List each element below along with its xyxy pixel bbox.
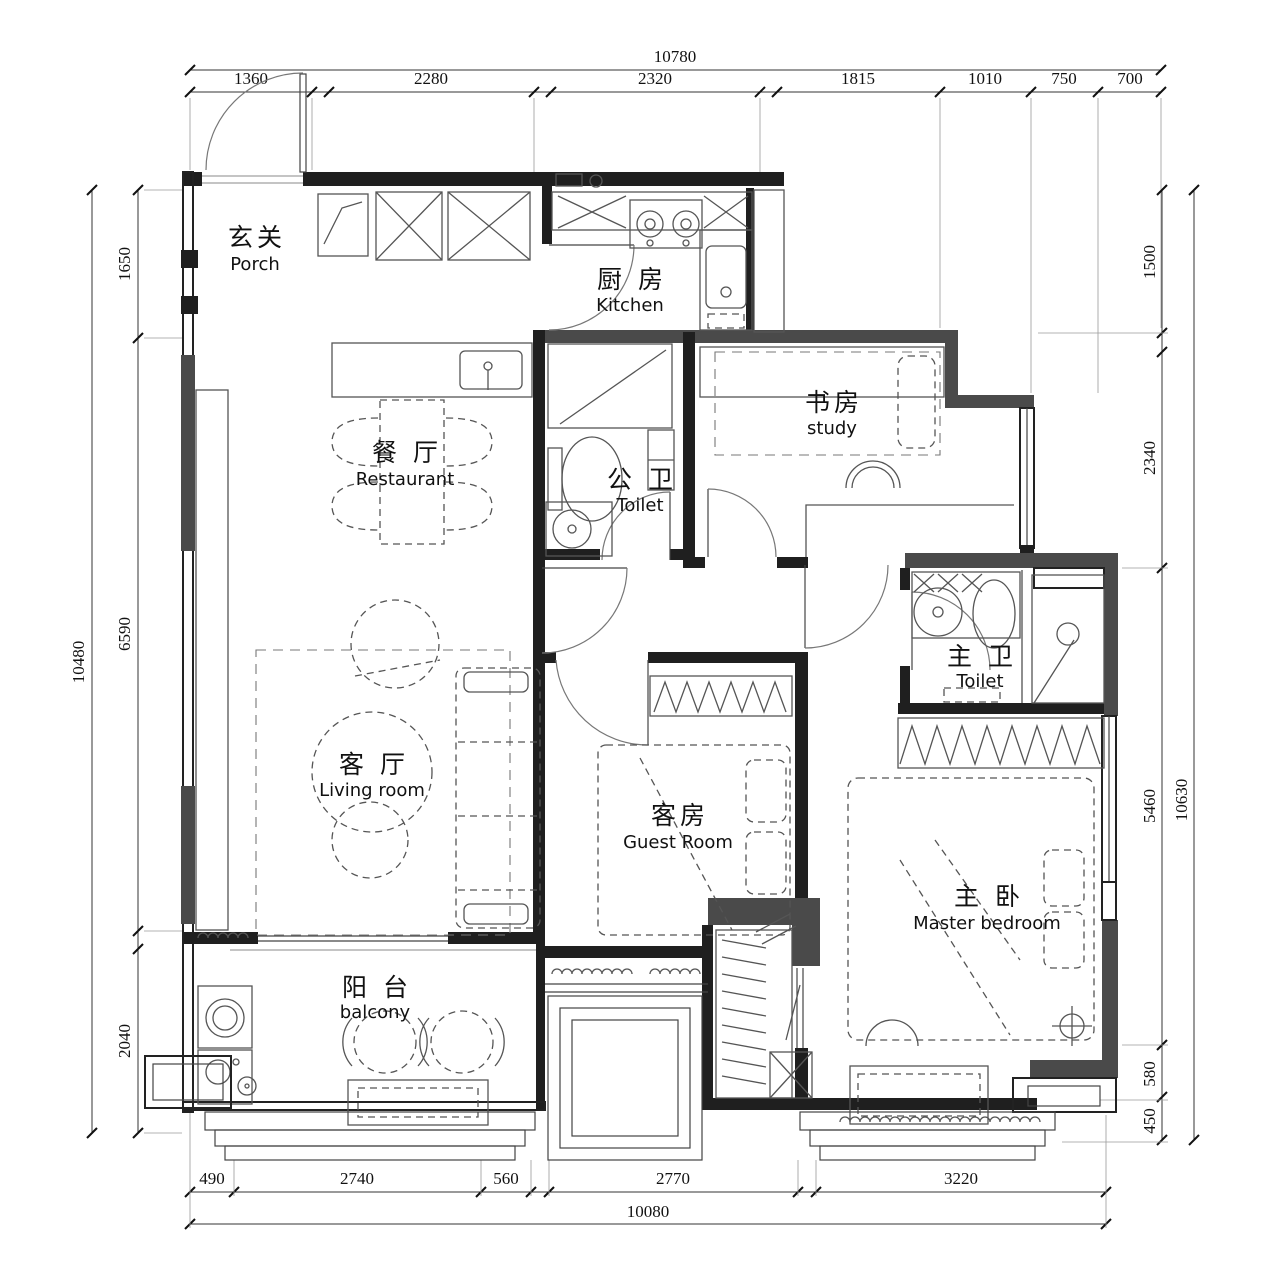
public-toilet-fixtures (546, 344, 674, 556)
shower-area (548, 344, 672, 428)
master-bench (850, 1066, 988, 1124)
bay-window-master-inner (1028, 1086, 1100, 1106)
label-living-cn: 客 厅 (339, 750, 409, 779)
wall-bath-south (898, 703, 1118, 714)
wall-bath-north (905, 553, 1118, 568)
shoe-cabinet (318, 194, 368, 256)
wall-study-south-2 (777, 557, 808, 568)
porch-fixtures (318, 192, 530, 260)
wall-band-south-kitchen (533, 330, 958, 343)
label-public-toilet-cn: 公 卫 (607, 465, 677, 494)
label-living-en: Living room (319, 780, 425, 801)
curtain-scallop-master (840, 1117, 1040, 1122)
label-kitchen-cn: 厨 房 (597, 265, 667, 294)
dim-right-seg-3: 580 (1140, 1061, 1159, 1087)
master-bay-1 (800, 1112, 1055, 1130)
label-balcony-en: balcony (340, 1002, 411, 1023)
wall-niche-top (181, 250, 198, 268)
master-chair (866, 1020, 918, 1046)
curtain-scallop-guest-2 (650, 969, 700, 974)
label-study-en: study (807, 418, 857, 439)
study-chair (846, 461, 900, 488)
study-desk (806, 505, 1014, 557)
sofa-armrest-bottom (464, 904, 528, 924)
dim-left-seg-2: 2040 (115, 1024, 134, 1058)
label-public-toilet-en: Toilet (615, 495, 663, 516)
guest-bay-2 (560, 1008, 690, 1148)
dimension-chain-right: 10630 1500 2340 5460 580 450 (1038, 185, 1199, 1145)
wall-guest-south (545, 946, 710, 958)
master-pillow-1 (1044, 850, 1084, 906)
dim-top-seg-2: 2320 (638, 69, 672, 88)
balcony-bay-1 (205, 1112, 535, 1130)
cloakroom-sliding-door (786, 968, 803, 1048)
wall-toilet-south-1 (533, 549, 600, 560)
dim-right-seg-0: 1500 (1140, 245, 1159, 279)
wall-balcony-east (536, 944, 545, 1110)
wall-bath-west-1 (900, 568, 910, 590)
master-entry-door (805, 565, 888, 648)
wall-bay-top (1030, 1060, 1118, 1078)
master-bay-3 (820, 1146, 1035, 1160)
label-dining-en: Restaurant (356, 469, 455, 490)
dim-bottom-total: 10080 (627, 1202, 670, 1221)
dim-bottom-seg-4: 3220 (944, 1169, 978, 1188)
wall-east-shear-1 (1104, 553, 1118, 716)
wall-balcony-north-2 (448, 932, 545, 944)
master-bath-fixtures (912, 572, 1104, 703)
dimension-chain-left: 10480 1650 6590 2040 (69, 185, 182, 1138)
wall-toilet-east (683, 332, 695, 568)
wall-study-south-1 (688, 557, 705, 568)
tv-cabinet-strip (196, 390, 228, 930)
island-sink (460, 351, 522, 389)
dim-right-total: 10630 (1172, 779, 1191, 822)
study-lounger (898, 356, 935, 448)
dim-top-seg-6: 700 (1117, 69, 1143, 88)
hanger-rail (722, 940, 766, 1084)
label-guest-en: Guest Room (623, 832, 733, 853)
shower-drain (1057, 623, 1079, 645)
window-master-east-2 (1102, 882, 1116, 920)
guest-pillow-1 (746, 760, 786, 822)
balcony-chair-2 (431, 1011, 493, 1073)
wall-top (303, 172, 784, 186)
wall-toilet-west (533, 330, 545, 560)
corridor-door (542, 568, 627, 653)
wall-guest-north-2 (648, 652, 808, 663)
island-faucet (484, 362, 492, 370)
balcony-bay-2 (215, 1130, 525, 1146)
dim-right-seg-1: 2340 (1140, 441, 1159, 475)
wall-east-shear-2 (1102, 920, 1118, 1062)
master-bay-2 (810, 1130, 1045, 1146)
dim-bottom-seg-1: 2740 (340, 1169, 374, 1188)
sofa-armrest-top (464, 672, 528, 692)
master-shower (1032, 575, 1104, 703)
dim-left-seg-0: 1650 (115, 247, 134, 281)
wall-step-horizontal (945, 395, 1034, 408)
dim-top-seg-4: 1010 (968, 69, 1002, 88)
armchair (351, 600, 439, 688)
label-master-toilet-en: Toilet (955, 671, 1003, 692)
wall-kitchen-east (746, 188, 754, 332)
dim-right-seg-2: 5460 (1140, 789, 1159, 823)
dim-top-total: 10780 (654, 47, 697, 66)
dim-bottom-seg-3: 2770 (656, 1169, 690, 1188)
label-porch-cn: 玄关 (228, 223, 286, 252)
wc-tank (548, 448, 562, 510)
guest-bay-3 (572, 1020, 678, 1136)
wall-living-east (533, 560, 545, 935)
bath-counter (912, 572, 1020, 638)
master-fixtures (800, 718, 1104, 1160)
dining-chair-3 (446, 418, 492, 466)
kitchen-appliance (708, 314, 744, 328)
dim-top-seg-0: 1360 (234, 69, 268, 88)
bath-sink (914, 588, 962, 636)
floor-plan-page: 10780 1360 2280 2320 1815 1010 750 700 1… (0, 0, 1280, 1280)
wall-left-shear-2 (181, 786, 195, 924)
burner-left (637, 211, 663, 237)
label-master-en: Master bedroom (913, 913, 1061, 934)
wall-left-shear-1 (181, 355, 195, 551)
label-circle-small (332, 802, 408, 878)
kitchen-drain (721, 287, 731, 297)
guest-pillow-2 (746, 832, 786, 894)
wall-master-west-low (795, 1048, 808, 1110)
window-bath-high (1034, 568, 1104, 588)
wall-balcony-south (183, 1102, 545, 1110)
dim-left-seg-1: 6590 (115, 617, 134, 651)
dim-bottom-seg-2: 560 (493, 1169, 519, 1188)
label-master-cn: 主 卧 (954, 882, 1024, 911)
label-guest-cn: 客房 (651, 801, 709, 830)
dim-right-seg-4: 450 (1140, 1108, 1159, 1134)
floor-drain (238, 1077, 256, 1095)
label-kitchen-en: Kitchen (596, 295, 664, 316)
dim-bottom-seg-0: 490 (199, 1169, 225, 1188)
study-door (708, 489, 776, 557)
curtain-scallop-guest-1 (552, 969, 632, 974)
wall-cloak-south (702, 1098, 835, 1110)
label-master-toilet-cn: 主 卫 (947, 642, 1017, 671)
dim-left-total: 10480 (69, 641, 88, 684)
dim-top-seg-5: 750 (1051, 69, 1077, 88)
wall-kitchen-west (542, 184, 552, 244)
wall-guest-master (795, 652, 808, 898)
sink-public (553, 510, 591, 548)
study-fixtures (700, 347, 1014, 557)
burner-right (673, 211, 699, 237)
kitchen-sink (706, 246, 746, 308)
wall-niche-bottom (181, 296, 198, 314)
label-study-cn: 书房 (805, 388, 863, 417)
pipe-shaft (754, 190, 784, 332)
wall-cloak-east-shear (792, 898, 820, 966)
guest-door (556, 660, 648, 745)
label-balcony-cn: 阳 台 (342, 973, 412, 1002)
sofa (456, 668, 540, 928)
floor-plan-drawing: 10780 1360 2280 2320 1815 1010 750 700 1… (0, 0, 1280, 1280)
label-dining-cn: 餐 厅 (372, 438, 442, 467)
dim-top-seg-3: 1815 (841, 69, 875, 88)
dim-top-seg-1: 2280 (414, 69, 448, 88)
label-porch-en: Porch (230, 254, 280, 275)
wall-guest-north-1 (545, 652, 556, 663)
balcony-bay-3 (225, 1146, 515, 1160)
